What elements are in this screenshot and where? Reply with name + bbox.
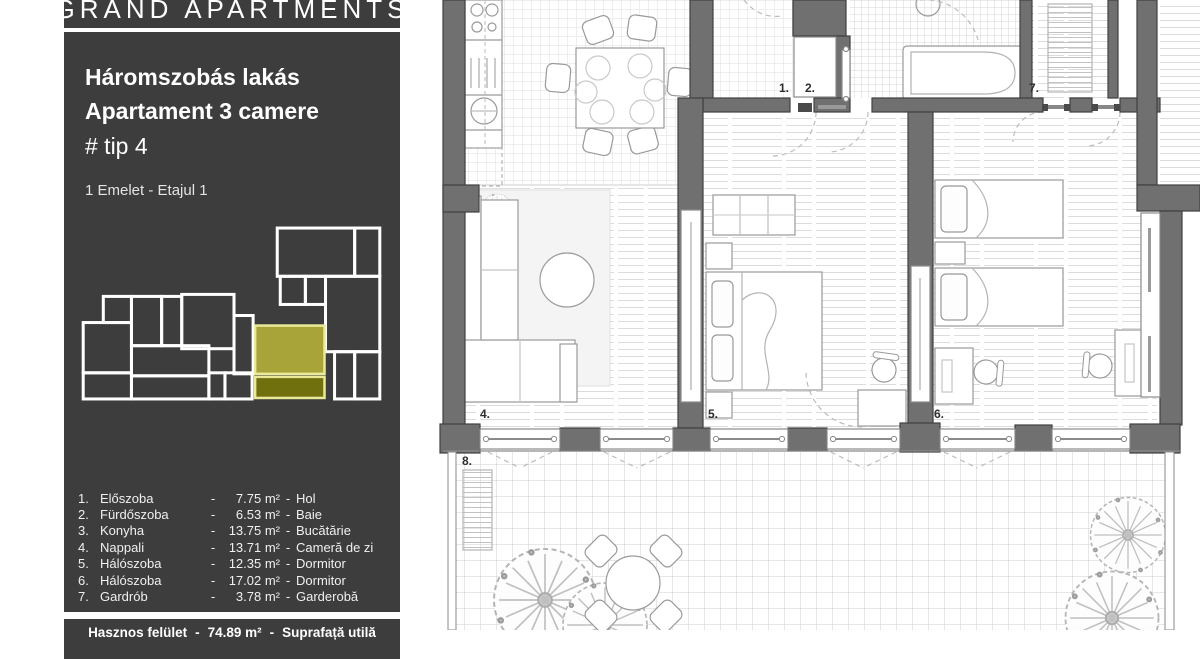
legend-name-hu: Nappali [100, 540, 206, 555]
coffee-table [540, 253, 594, 307]
room-label-8: 8. [462, 455, 472, 467]
legend-nr: 6. [78, 573, 100, 588]
wardrobe-shelf [1048, 4, 1092, 92]
apartment-type: # tip 4 [85, 128, 386, 164]
room-label-7: 7. [1029, 82, 1039, 94]
total-dash: - [187, 625, 208, 640]
room-label-1: 1. [779, 82, 789, 94]
apartment-title-hu: Háromszobás lakás [85, 60, 386, 94]
legend-name-ro: Hol [296, 491, 390, 506]
total-dash: - [262, 625, 283, 640]
legend-area: 13.75 m² [220, 523, 280, 538]
legend-dash: - [206, 573, 220, 588]
sofa-armrest [560, 344, 577, 402]
terrace-side-wall [1165, 452, 1174, 630]
legend-row: 3. Konyha - 13.75 m² - Bucătărie [78, 523, 390, 539]
legend-dash: - [280, 573, 296, 588]
legend-area: 3.78 m² [220, 589, 280, 604]
legend-nr: 2. [78, 507, 100, 522]
legend-nr: 5. [78, 556, 100, 571]
legend-dash: - [206, 491, 220, 506]
sofa-seat [463, 340, 575, 402]
legend-name-ro: Dormitor [296, 573, 390, 588]
building-minimap [72, 220, 392, 406]
legend-area: 12.35 m² [220, 556, 280, 571]
legend-name-hu: Előszoba [100, 491, 206, 506]
legend-row: 6. Hálószoba - 17.02 m² - Dormitor [78, 572, 390, 588]
legend-name-ro: Baie [296, 507, 390, 522]
page: { "brand": {"name": "GRAND APARTMENTS"},… [0, 0, 1200, 630]
legend-name-hu: Fürdőszoba [100, 507, 206, 522]
legend-dash: - [206, 556, 220, 571]
legend-name-hu: Hálószoba [100, 556, 206, 571]
total-area-bar: Hasznos felület - 74.89 m² - Suprafață u… [64, 619, 400, 659]
legend-dash: - [280, 507, 296, 522]
legend-area: 6.53 m² [220, 507, 280, 522]
total-label-hu: Hasznos felület [88, 625, 187, 640]
legend-row: 4. Nappali - 13.71 m² - Cameră de zi [78, 539, 390, 555]
floor-line: 1 Emelet - Etajul 1 [85, 182, 386, 199]
brand-header: GRAND APARTMENTS [64, 0, 400, 28]
apartment-title-ro: Apartament 3 camere [85, 94, 386, 128]
legend-name-ro: Garderobă [296, 589, 390, 604]
legend-area: 7.75 m² [220, 491, 280, 506]
total-label-ro: Suprafață utilă [282, 625, 376, 640]
brand-name: GRAND APARTMENTS [55, 0, 410, 25]
room-label-4: 4. [480, 408, 490, 420]
room-legend: 1. Előszoba - 7.75 m² - Hol 2. Fürdőszob… [78, 490, 390, 605]
legend-dash: - [206, 540, 220, 555]
minimap-highlight-unit [255, 326, 324, 374]
info-panel: Háromszobás lakás Apartament 3 camere # … [64, 32, 400, 612]
legend-name-ro: Dormitor [296, 556, 390, 571]
nightstand [935, 242, 965, 264]
minimap-highlight-terrace [255, 377, 324, 398]
legend-row: 1. Előszoba - 7.75 m² - Hol [78, 490, 390, 506]
legend-name-hu: Hálószoba [100, 573, 206, 588]
legend-row: 5. Hálószoba - 12.35 m² - Dormitor [78, 556, 390, 572]
legend-name-ro: Bucătărie [296, 523, 390, 538]
legend-area: 17.02 m² [220, 573, 280, 588]
bathtub [903, 46, 1023, 100]
desk [858, 390, 906, 426]
room-label-6: 6. [934, 408, 944, 420]
legend-area: 13.71 m² [220, 540, 280, 555]
total-area: 74.89 m² [208, 625, 262, 640]
nightstand [706, 243, 732, 269]
legend-dash: - [206, 589, 220, 604]
legend-dash: - [206, 507, 220, 522]
legend-nr: 1. [78, 491, 100, 506]
legend-name-hu: Gardrób [100, 589, 206, 604]
legend-nr: 3. [78, 523, 100, 538]
terrace-side-wall [448, 452, 456, 630]
room-label-5: 5. [708, 408, 718, 420]
legend-dash: - [280, 540, 296, 555]
legend-dash: - [280, 523, 296, 538]
legend-row: 2. Fürdőszoba - 6.53 m² - Baie [78, 506, 390, 522]
legend-dash: - [280, 491, 296, 506]
legend-nr: 4. [78, 540, 100, 555]
legend-name-ro: Cameră de zi [296, 540, 390, 555]
terrace-table [606, 556, 660, 610]
room-label-2: 2. [805, 82, 815, 94]
legend-dash: - [280, 589, 296, 604]
legend-name-hu: Konyha [100, 523, 206, 538]
legend-dash: - [206, 523, 220, 538]
tree-icon [1091, 498, 1166, 573]
legend-row: 7. Gardrób - 3.78 m² - Garderobă [78, 588, 390, 604]
bench [463, 470, 492, 550]
desk [935, 348, 973, 404]
legend-dash: - [280, 556, 296, 571]
living-room-furniture [463, 190, 610, 402]
legend-nr: 7. [78, 589, 100, 604]
